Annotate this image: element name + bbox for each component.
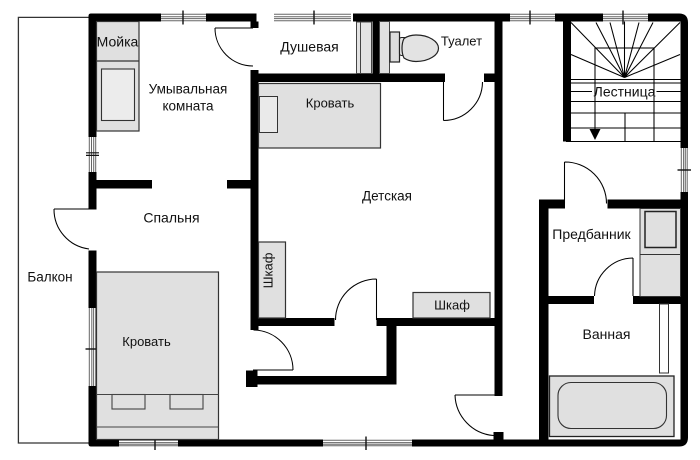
svg-text:Умывальная: Умывальная bbox=[149, 82, 228, 97]
svg-text:Лестница: Лестница bbox=[594, 84, 656, 100]
svg-text:Детская: Детская bbox=[362, 189, 412, 204]
svg-text:Предбанник: Предбанник bbox=[552, 226, 631, 242]
svg-text:Спальня: Спальня bbox=[143, 210, 199, 226]
svg-text:Туалет: Туалет bbox=[441, 34, 482, 49]
svg-text:Ванная: Ванная bbox=[583, 326, 631, 342]
svg-text:Кровать: Кровать bbox=[306, 96, 355, 111]
svg-text:Шкаф: Шкаф bbox=[261, 252, 276, 288]
svg-text:Кровать: Кровать bbox=[122, 334, 171, 349]
svg-text:Душевая: Душевая bbox=[280, 39, 338, 55]
svg-text:Шкаф: Шкаф bbox=[434, 298, 470, 313]
svg-text:Балкон: Балкон bbox=[27, 270, 72, 285]
svg-text:Мойка: Мойка bbox=[97, 34, 139, 50]
svg-text:комната: комната bbox=[162, 99, 214, 114]
